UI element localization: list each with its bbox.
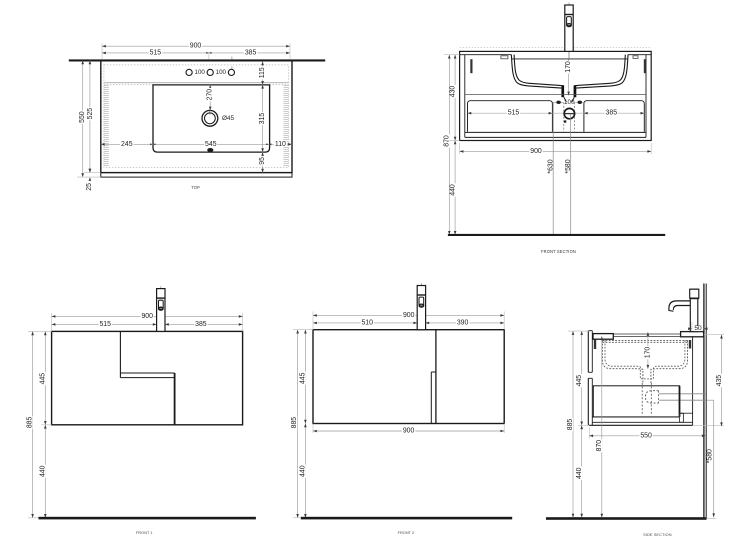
svg-text:385: 385 bbox=[606, 110, 618, 117]
svg-text:*580: *580 bbox=[707, 449, 714, 463]
svg-text:Ø45: Ø45 bbox=[222, 115, 235, 122]
svg-text:270: 270 bbox=[207, 89, 214, 101]
svg-text:110: 110 bbox=[275, 141, 286, 148]
svg-text:900: 900 bbox=[141, 313, 153, 320]
svg-text:870: 870 bbox=[444, 135, 451, 147]
svg-text:885: 885 bbox=[567, 419, 574, 431]
svg-text:170: 170 bbox=[644, 347, 651, 359]
svg-text:390: 390 bbox=[457, 319, 469, 326]
svg-text:440: 440 bbox=[449, 184, 456, 196]
svg-text:515: 515 bbox=[150, 49, 162, 56]
svg-text:900: 900 bbox=[190, 43, 202, 50]
svg-text:510: 510 bbox=[361, 319, 373, 326]
svg-text:385: 385 bbox=[245, 49, 257, 56]
svg-text:FRONT SECTION: FRONT SECTION bbox=[541, 249, 576, 254]
svg-text:25: 25 bbox=[86, 183, 93, 191]
svg-text:440: 440 bbox=[576, 467, 583, 479]
svg-text:900: 900 bbox=[530, 148, 542, 155]
svg-text:550: 550 bbox=[640, 432, 652, 439]
svg-text:SIDE SECTION: SIDE SECTION bbox=[643, 532, 672, 537]
svg-text:*630: *630 bbox=[547, 159, 554, 173]
svg-text:885: 885 bbox=[291, 417, 298, 429]
svg-text:245: 245 bbox=[121, 141, 133, 148]
svg-text:515: 515 bbox=[99, 321, 111, 328]
svg-text:435: 435 bbox=[716, 375, 723, 387]
svg-text:900: 900 bbox=[403, 428, 415, 435]
svg-text:885: 885 bbox=[27, 416, 34, 428]
svg-text:545: 545 bbox=[205, 141, 217, 148]
svg-text:900: 900 bbox=[403, 312, 415, 319]
svg-text:315: 315 bbox=[259, 113, 266, 125]
svg-text:445: 445 bbox=[300, 372, 307, 384]
svg-text:*580: *580 bbox=[565, 159, 572, 173]
svg-text:385: 385 bbox=[195, 321, 207, 328]
svg-text:100: 100 bbox=[195, 69, 206, 76]
svg-text:TOP: TOP bbox=[191, 185, 200, 190]
svg-text:95: 95 bbox=[259, 157, 266, 165]
svg-text:445: 445 bbox=[576, 375, 583, 387]
svg-text:100: 100 bbox=[216, 69, 227, 76]
svg-text:440: 440 bbox=[300, 465, 307, 477]
svg-text:515: 515 bbox=[508, 110, 520, 117]
svg-text:445: 445 bbox=[39, 373, 46, 385]
svg-text:550: 550 bbox=[79, 111, 86, 123]
svg-text:FRONT 1: FRONT 1 bbox=[136, 530, 153, 535]
svg-text:440: 440 bbox=[39, 465, 46, 477]
svg-text:525: 525 bbox=[87, 108, 94, 120]
svg-text:115: 115 bbox=[259, 67, 266, 78]
svg-text:170: 170 bbox=[565, 61, 572, 73]
svg-text:FRONT 2: FRONT 2 bbox=[398, 530, 415, 535]
svg-text:430: 430 bbox=[449, 86, 456, 98]
svg-text:870: 870 bbox=[596, 440, 603, 452]
svg-text:50: 50 bbox=[694, 325, 702, 332]
